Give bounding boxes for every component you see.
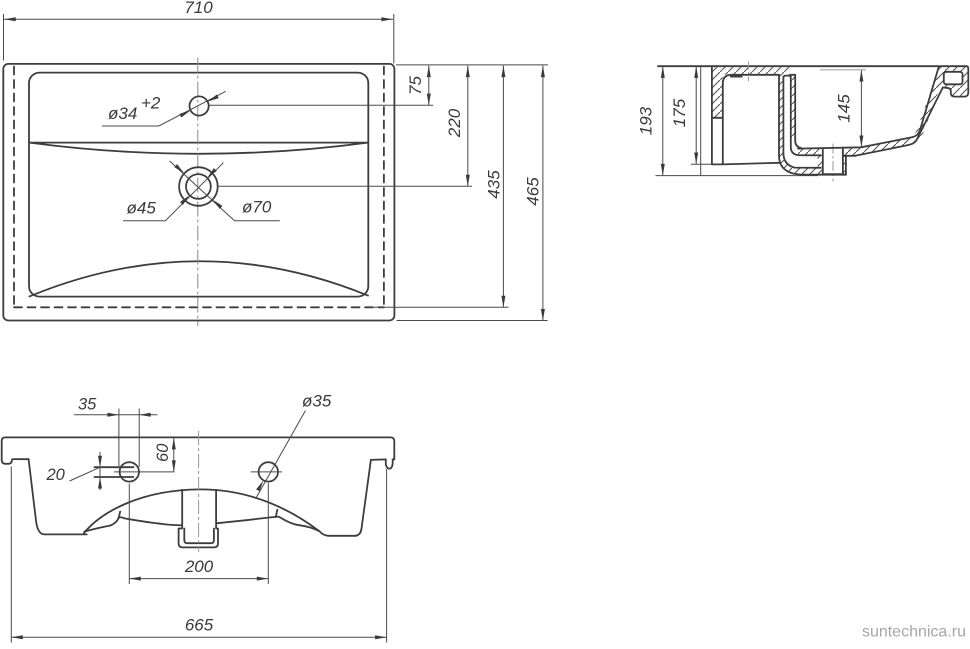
svg-text:75: 75: [406, 76, 425, 95]
svg-text:710: 710: [184, 0, 213, 17]
svg-text:145: 145: [835, 94, 854, 123]
svg-text:465: 465: [523, 177, 542, 206]
svg-text:665: 665: [185, 616, 214, 635]
svg-text:ø70: ø70: [242, 198, 272, 217]
svg-text:220: 220: [445, 108, 464, 138]
svg-text:suntechnica.ru: suntechnica.ru: [862, 624, 966, 641]
svg-text:435: 435: [484, 170, 503, 199]
svg-text:200: 200: [184, 557, 214, 576]
svg-text:193: 193: [637, 106, 656, 135]
svg-text:ø35: ø35: [302, 392, 332, 411]
svg-text:20: 20: [46, 466, 66, 484]
svg-text:+2: +2: [141, 94, 161, 113]
svg-text:ø45: ø45: [127, 199, 157, 218]
svg-text:175: 175: [670, 98, 689, 127]
svg-text:ø34: ø34: [108, 104, 137, 123]
svg-text:35: 35: [78, 396, 97, 414]
svg-text:60: 60: [154, 443, 172, 462]
